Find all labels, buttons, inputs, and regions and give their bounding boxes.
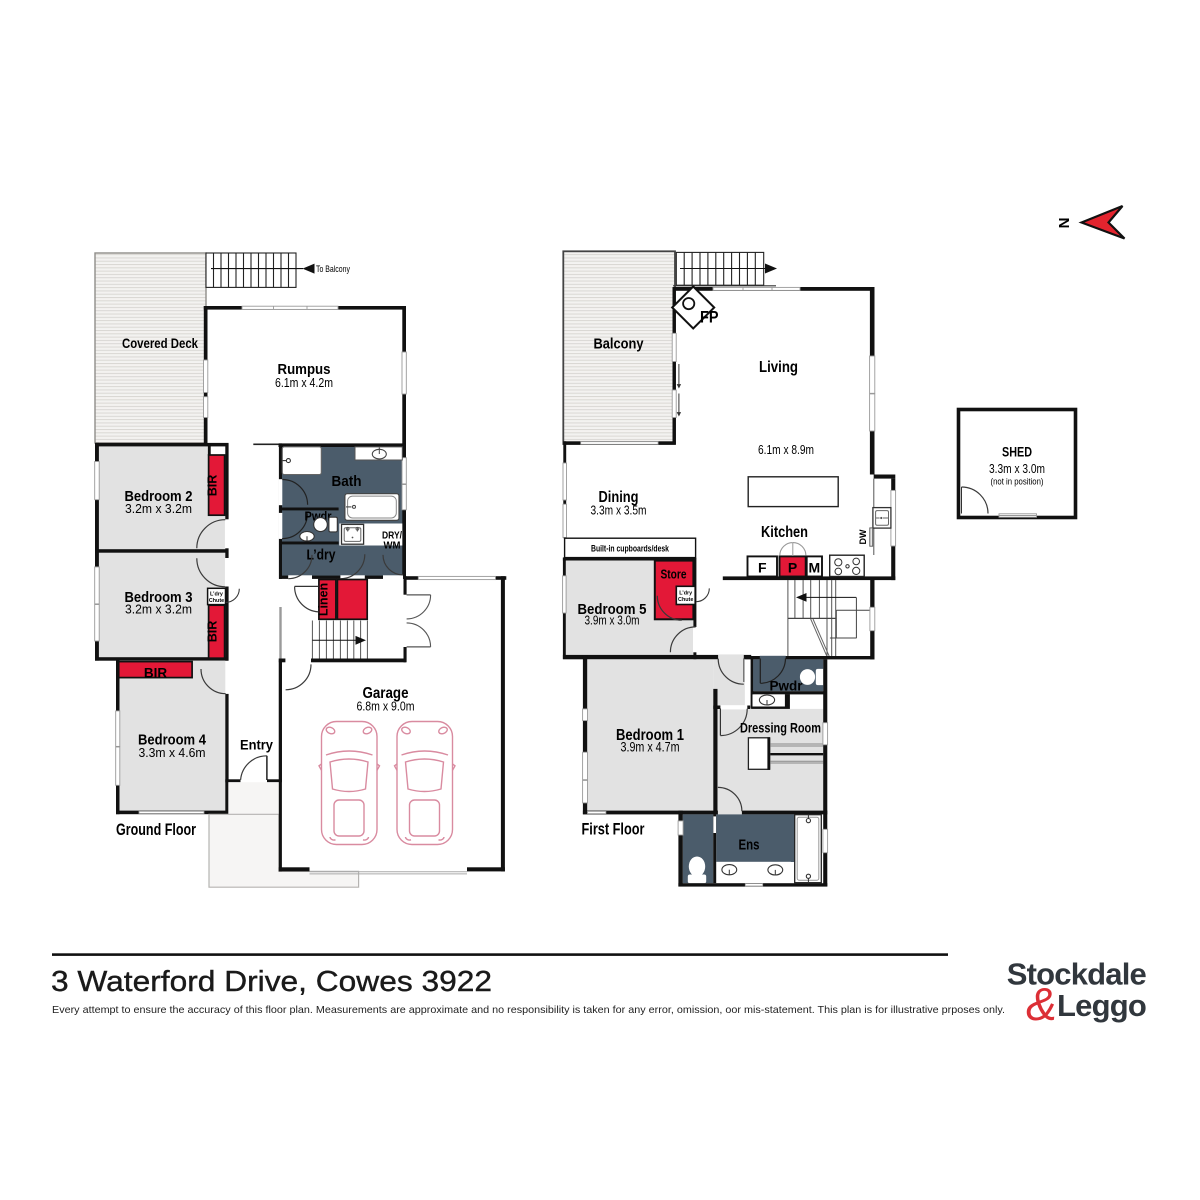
svg-text:Every attempt to ensure the ac: Every attempt to ensure the accuracy of … (52, 1005, 1005, 1016)
svg-text:Living: Living (759, 359, 798, 376)
svg-text:3.3m x 3.5m: 3.3m x 3.5m (591, 503, 647, 518)
svg-text:3 Waterford Drive, Cowes 3922: 3 Waterford Drive, Cowes 3922 (51, 966, 492, 998)
svg-text:3.2m x 3.2m: 3.2m x 3.2m (125, 501, 192, 516)
svg-text:BIR: BIR (144, 666, 168, 681)
svg-text:To Balcony: To Balcony (316, 264, 350, 275)
svg-text:DW: DW (858, 529, 868, 544)
svg-text:Ens: Ens (739, 838, 760, 854)
svg-text:(not in position): (not in position) (991, 477, 1044, 488)
svg-text:&: & (1026, 978, 1057, 1030)
svg-text:M: M (808, 560, 820, 576)
svg-text:N: N (1056, 218, 1073, 229)
svg-text:Store: Store (661, 567, 687, 582)
svg-text:Linen: Linen (317, 583, 331, 616)
svg-text:Built-in cupboards/desk: Built-in cupboards/desk (591, 544, 670, 555)
svg-text:L’dry: L’dry (679, 590, 692, 596)
svg-text:BIR: BIR (206, 475, 220, 497)
svg-text:BIR: BIR (206, 621, 220, 643)
svg-text:WM: WM (384, 540, 401, 552)
svg-text:3.3m x 4.6m: 3.3m x 4.6m (139, 745, 206, 760)
svg-text:6.1m x 8.9m: 6.1m x 8.9m (758, 442, 814, 457)
svg-text:Ground Floor: Ground Floor (116, 821, 196, 839)
svg-text:Covered Deck: Covered Deck (122, 335, 198, 351)
svg-text:Bath: Bath (332, 473, 362, 490)
svg-text:3.9m x 4.7m: 3.9m x 4.7m (621, 740, 680, 755)
svg-text:3.2m x 3.2m: 3.2m x 3.2m (125, 602, 192, 617)
svg-text:FP: FP (700, 309, 719, 327)
svg-text:6.8m x 9.0m: 6.8m x 9.0m (357, 699, 415, 714)
svg-text:P: P (788, 560, 797, 576)
svg-text:Kitchen: Kitchen (761, 524, 808, 541)
svg-text:Dressing Room: Dressing Room (740, 720, 821, 736)
svg-text:Chute: Chute (209, 598, 224, 604)
svg-text:Leggo: Leggo (1057, 988, 1146, 1023)
svg-text:Entry: Entry (240, 737, 273, 753)
svg-text:Chute: Chute (678, 597, 693, 603)
svg-text:Balcony: Balcony (594, 336, 645, 353)
svg-text:SHED: SHED (1002, 445, 1032, 460)
svg-text:3.3m x 3.0m: 3.3m x 3.0m (989, 461, 1045, 476)
svg-text:L’dry: L’dry (210, 591, 223, 597)
svg-text:3.9m x 3.0m: 3.9m x 3.0m (585, 613, 640, 628)
svg-text:6.1m x 4.2m: 6.1m x 4.2m (275, 375, 333, 390)
svg-text:F: F (758, 560, 767, 576)
svg-text:First Floor: First Floor (582, 821, 645, 839)
